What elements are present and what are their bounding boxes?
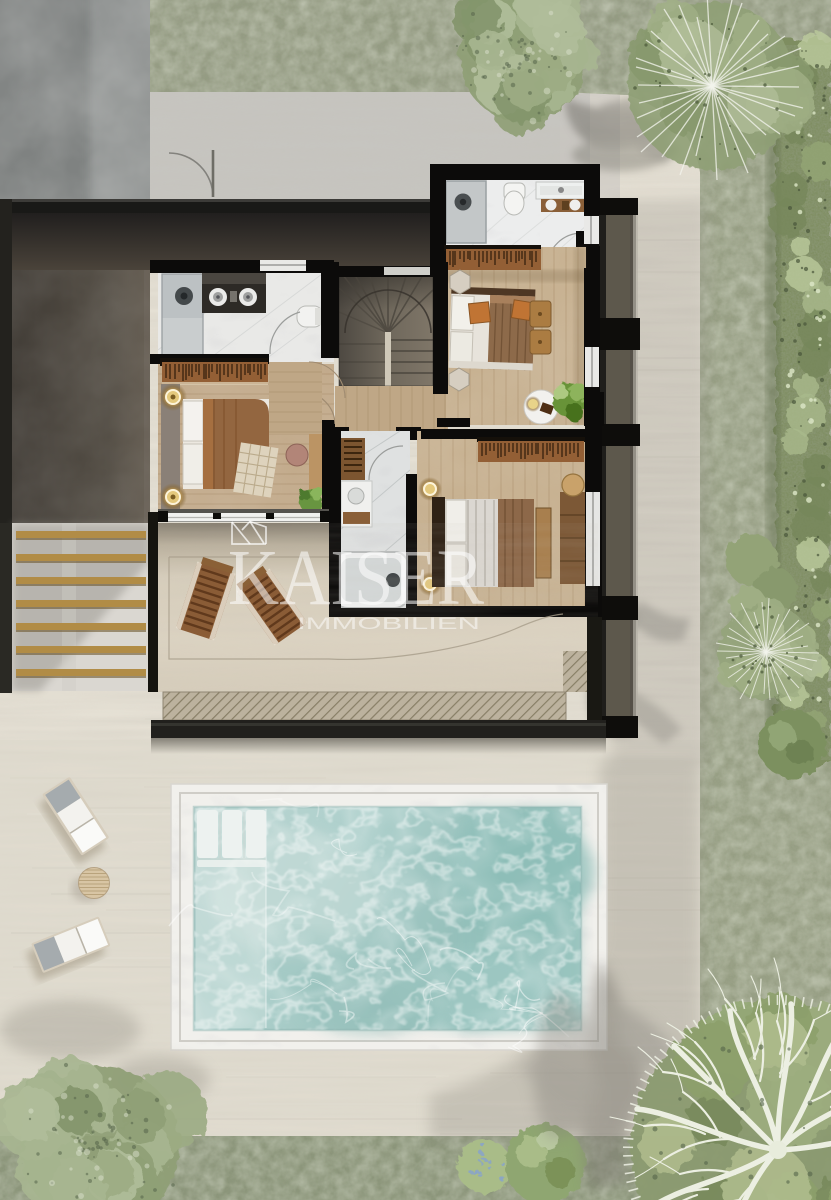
svg-text:KAISER: KAISER: [228, 535, 484, 622]
svg-text:IMMOBILIEN: IMMOBILIEN: [297, 614, 480, 633]
